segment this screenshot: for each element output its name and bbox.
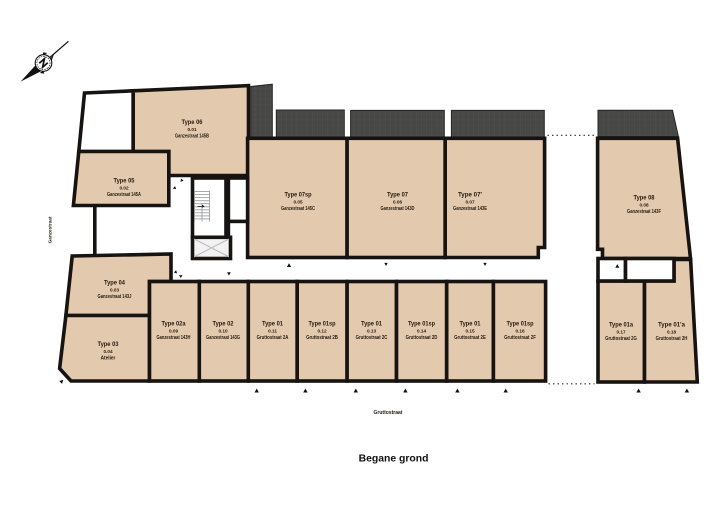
svg-text:0.08: 0.08	[639, 203, 649, 208]
svg-text:Type 07: Type 07	[387, 191, 408, 198]
svg-text:0.12: 0.12	[317, 329, 327, 334]
svg-text:Gruttostraat 2F: Gruttostraat 2F	[504, 335, 536, 341]
svg-text:Gruttostraat: Gruttostraat	[374, 410, 403, 416]
svg-text:0.06: 0.06	[393, 199, 403, 204]
svg-text:Gruttostraat 2D: Gruttostraat 2D	[406, 335, 438, 341]
svg-text:0.04: 0.04	[103, 349, 113, 354]
svg-text:Type 01: Type 01	[262, 321, 283, 328]
svg-text:Gruttostraat 2A: Gruttostraat 2A	[257, 335, 289, 341]
svg-text:Ganzestraat 143F: Ganzestraat 143F	[627, 209, 661, 215]
svg-text:0.14: 0.14	[417, 329, 427, 334]
svg-text:0.18: 0.18	[667, 330, 677, 335]
svg-text:0.13: 0.13	[367, 329, 377, 334]
svg-text:Ganzestraat: Ganzestraat	[48, 216, 53, 243]
svg-text:Type 02: Type 02	[213, 321, 234, 328]
svg-text:Gruttostraat 2H: Gruttostraat 2H	[656, 336, 688, 342]
svg-text:0.03: 0.03	[110, 288, 120, 293]
svg-text:Gruttostraat 2E: Gruttostraat 2E	[454, 335, 486, 341]
svg-text:Type 08: Type 08	[634, 195, 655, 202]
svg-text:Type 04: Type 04	[104, 280, 125, 287]
svg-text:Type 05: Type 05	[114, 178, 135, 185]
svg-text:Type 01'a: Type 01'a	[658, 322, 685, 329]
svg-text:0.11: 0.11	[268, 329, 277, 334]
svg-text:Type 07': Type 07'	[458, 191, 482, 198]
svg-text:Ganzestraat 143G: Ganzestraat 143G	[206, 335, 240, 341]
svg-text:Ganzestraat 143E: Ganzestraat 143E	[453, 206, 487, 212]
svg-text:0.17: 0.17	[616, 330, 626, 335]
svg-text:Gruttostraat 2B: Gruttostraat 2B	[306, 335, 338, 341]
svg-text:Type 07sp: Type 07sp	[285, 191, 312, 198]
svg-text:Type 03: Type 03	[98, 341, 119, 348]
svg-text:Type 01sp: Type 01sp	[309, 321, 336, 328]
svg-text:Atelier: Atelier	[101, 356, 116, 362]
svg-text:Ganzestraat 145C: Ganzestraat 145C	[281, 206, 315, 212]
svg-text:Type 01: Type 01	[361, 321, 382, 328]
svg-text:Type 01a: Type 01a	[609, 322, 633, 329]
svg-text:0.16: 0.16	[515, 329, 525, 334]
svg-text:Gruttostraat 2C: Gruttostraat 2C	[356, 335, 388, 341]
svg-text:Begane grond: Begane grond	[359, 454, 429, 465]
svg-text:0.10: 0.10	[218, 329, 228, 334]
svg-text:Type 02a: Type 02a	[162, 321, 186, 328]
svg-text:Type 06: Type 06	[182, 119, 203, 126]
svg-text:0.02: 0.02	[119, 186, 129, 191]
svg-text:0.15: 0.15	[465, 329, 475, 334]
svg-text:Type 01: Type 01	[460, 321, 481, 328]
svg-text:Ganzestraat 143H: Ganzestraat 143H	[157, 335, 191, 341]
svg-text:Ganzestraat 145A: Ganzestraat 145A	[107, 192, 141, 198]
svg-text:Gruttostraat 2G: Gruttostraat 2G	[605, 336, 637, 342]
svg-text:0.05: 0.05	[293, 199, 303, 204]
svg-text:0.09: 0.09	[169, 329, 179, 334]
svg-text:Ganzestraat 145B: Ganzestraat 145B	[175, 134, 209, 140]
svg-text:Type 01sp: Type 01sp	[507, 321, 534, 328]
svg-text:Ganzestraat 143J: Ganzestraat 143J	[98, 294, 132, 300]
svg-text:Ganzestraat 143D: Ganzestraat 143D	[381, 206, 415, 212]
svg-text:0.07: 0.07	[465, 199, 475, 204]
svg-text:0.01: 0.01	[187, 127, 197, 132]
svg-text:Type 01sp: Type 01sp	[408, 321, 435, 328]
